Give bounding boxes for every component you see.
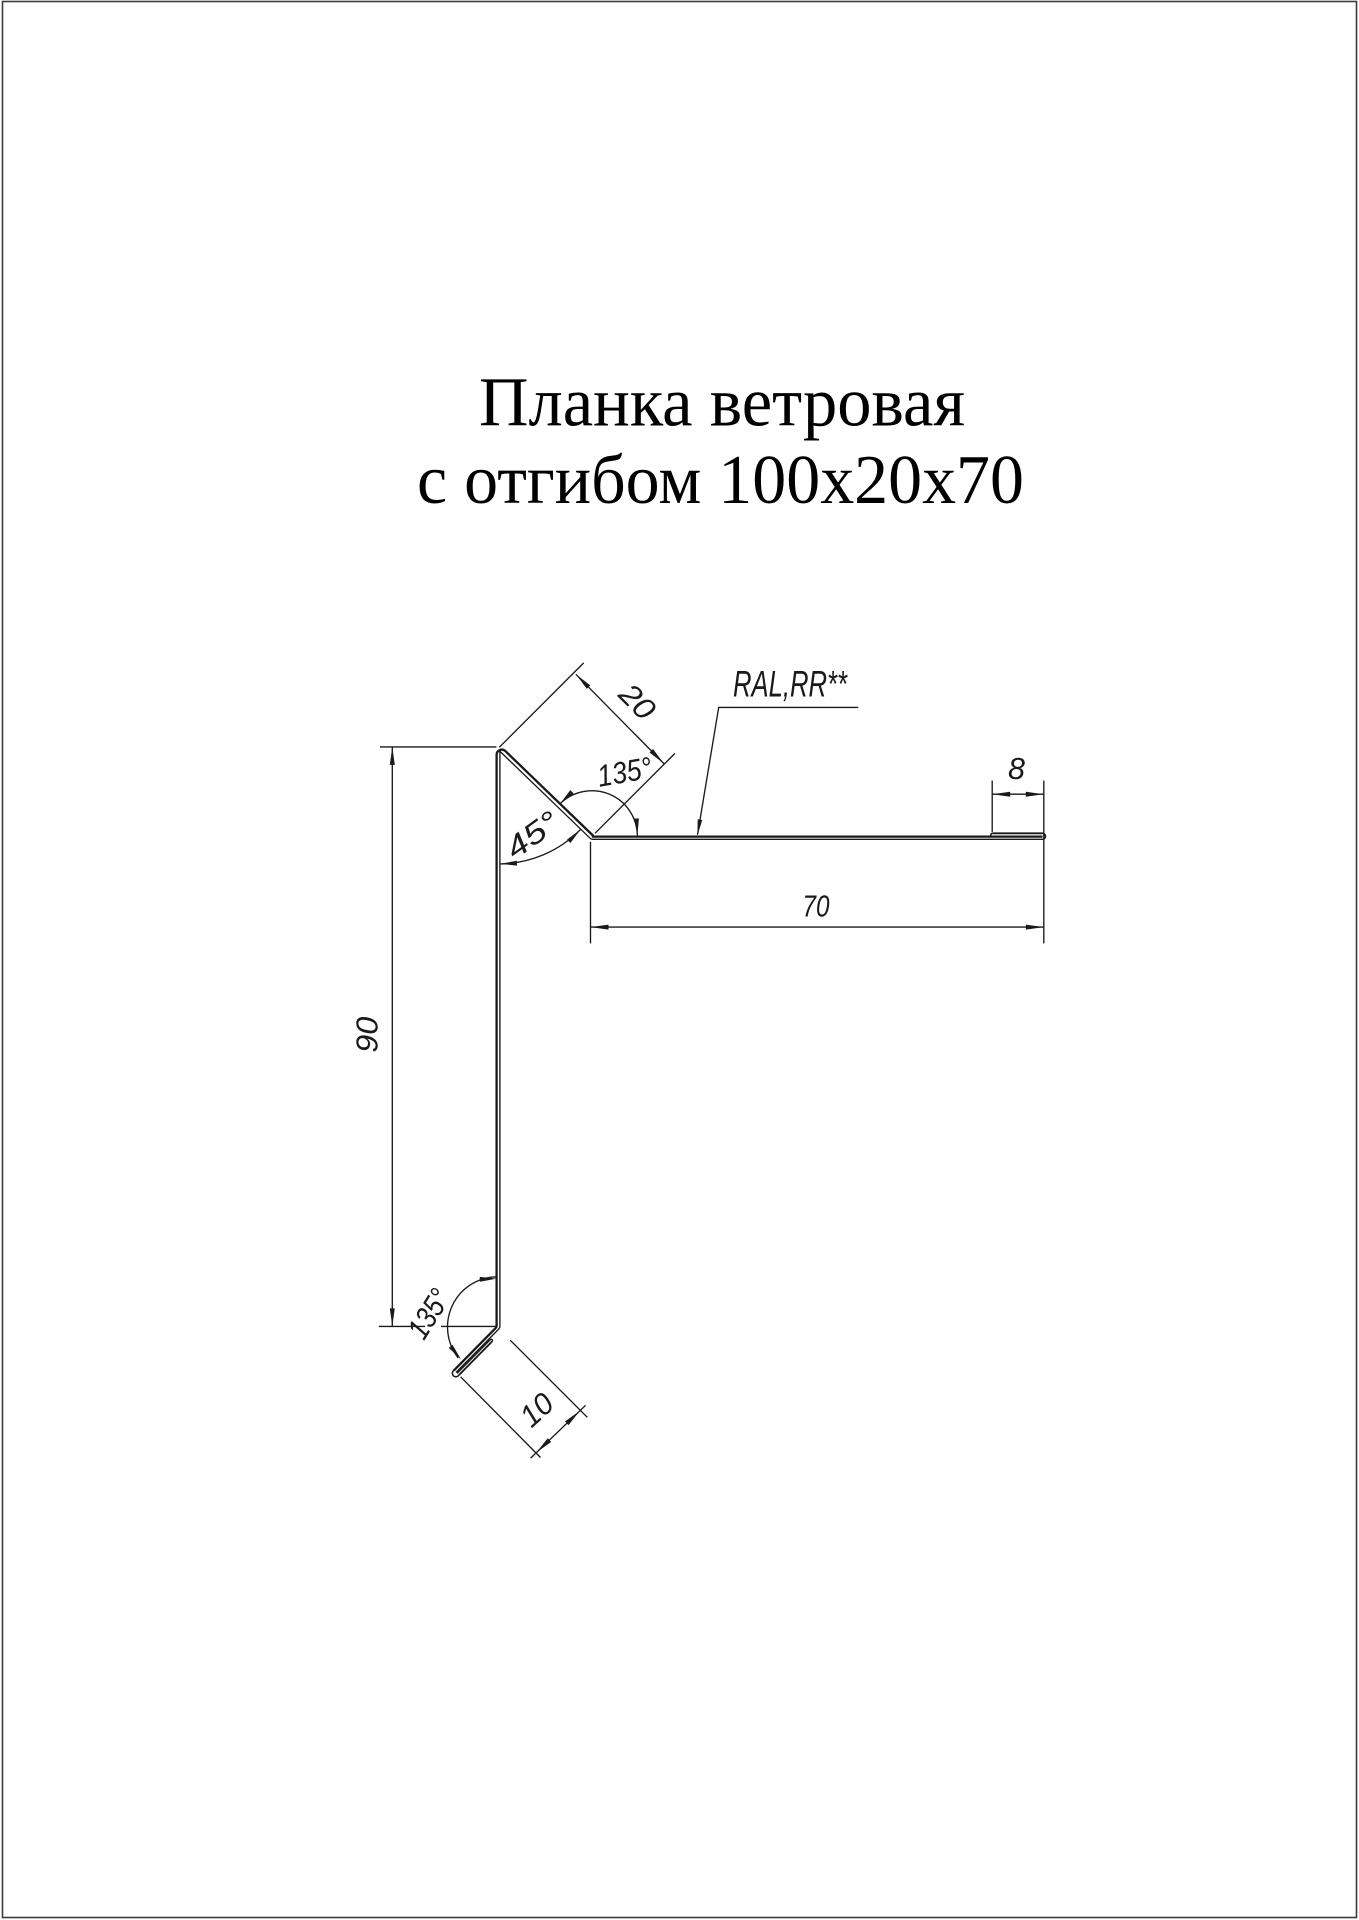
svg-text:8: 8 [1008, 752, 1025, 786]
svg-text:90: 90 [351, 1017, 385, 1053]
svg-text:Планка ветровая: Планка ветровая [479, 364, 965, 441]
svg-text:70: 70 [803, 890, 830, 924]
svg-text:RAL,RR**: RAL,RR** [733, 664, 848, 705]
svg-text:с отгибом 100х20х70: с отгибом 100х20х70 [417, 442, 1024, 519]
